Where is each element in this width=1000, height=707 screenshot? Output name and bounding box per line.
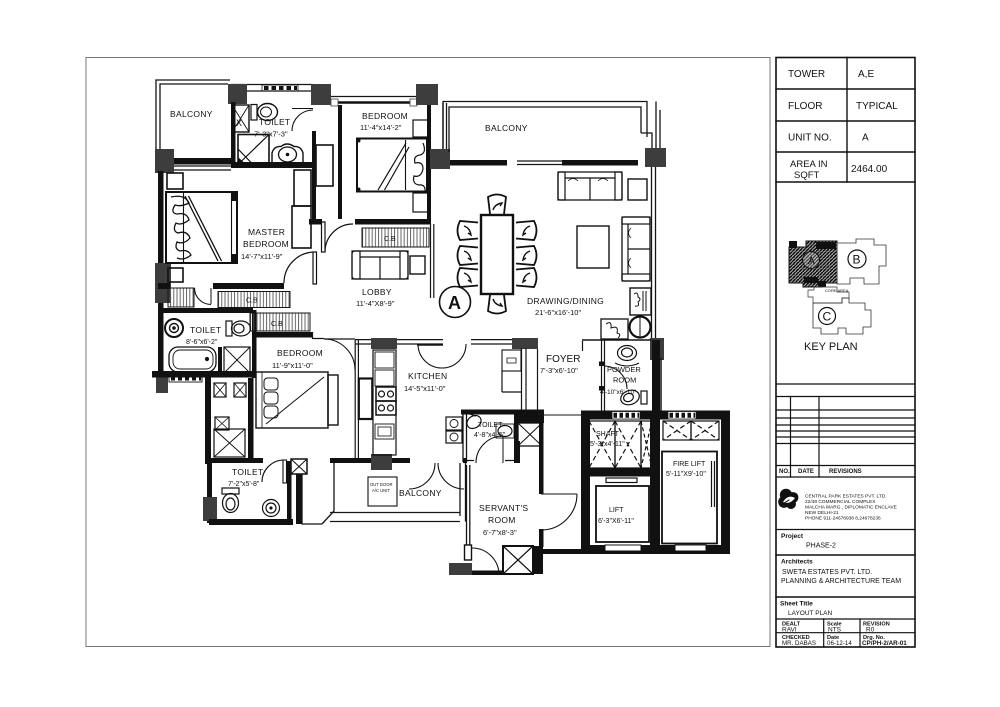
svg-text:PHONE 911-24678938 8,24678236: PHONE 911-24678938 8,24678236 <box>805 516 881 522</box>
svg-text:MALCHA MARG , DIPLOMATIC ENCLA: MALCHA MARG , DIPLOMATIC ENCLAVE <box>805 505 897 511</box>
svg-text:TOILET: TOILET <box>478 422 503 429</box>
svg-text:A,E: A,E <box>858 69 874 80</box>
svg-text:B: B <box>853 253 861 267</box>
svg-text:R0: R0 <box>866 627 875 634</box>
svg-text:BALCONY: BALCONY <box>170 109 213 119</box>
svg-text:LOBBY: LOBBY <box>362 287 392 297</box>
svg-text:MASTER: MASTER <box>248 227 285 237</box>
svg-text:DATE: DATE <box>798 469 814 475</box>
svg-text:KEY PLAN: KEY PLAN <box>804 341 858 353</box>
svg-text:BALCONY: BALCONY <box>485 123 528 133</box>
svg-text:POWDER: POWDER <box>607 365 641 374</box>
svg-text:7'-2"x5'-8": 7'-2"x5'-8" <box>228 481 260 488</box>
svg-text:22/48 COMMERCIAL COMPLEX: 22/48 COMMERCIAL COMPLEX <box>805 499 876 505</box>
svg-text:11'-9"x11'-0": 11'-9"x11'-0" <box>272 361 313 370</box>
svg-text:11'-4"X8'-9": 11'-4"X8'-9" <box>356 299 395 308</box>
svg-text:11'-4"x14'-2": 11'-4"x14'-2" <box>360 123 402 132</box>
svg-text:4'-10"x6'-10": 4'-10"x6'-10" <box>600 389 637 396</box>
svg-text:FLOOR: FLOOR <box>788 101 822 112</box>
svg-text:8'-6"x6'-2": 8'-6"x6'-2" <box>186 339 218 346</box>
svg-text:7'-3"x6'-10": 7'-3"x6'-10" <box>540 366 578 375</box>
svg-text:PHASE-2: PHASE-2 <box>806 543 836 550</box>
svg-text:Project: Project <box>781 533 804 540</box>
svg-text:ROOM: ROOM <box>488 515 516 525</box>
svg-text:CP/PH-2/AR-01: CP/PH-2/AR-01 <box>862 640 907 647</box>
svg-text:TOILET: TOILET <box>232 467 263 477</box>
svg-text:5'-3"x4'-11": 5'-3"x4'-11" <box>590 441 625 448</box>
svg-text:Sheet Title: Sheet Title <box>780 601 813 608</box>
svg-text:C.B: C.B <box>246 298 258 305</box>
svg-text:NEW DELHI-21: NEW DELHI-21 <box>805 510 839 516</box>
svg-text:X: X <box>236 118 242 128</box>
svg-text:FOYER: FOYER <box>546 354 580 365</box>
svg-text:C: C <box>823 310 832 324</box>
svg-text:BEDROOM: BEDROOM <box>243 239 289 249</box>
svg-text:06-12-14: 06-12-14 <box>827 640 852 647</box>
svg-text:BALCONY: BALCONY <box>399 488 442 498</box>
svg-text:ROOM: ROOM <box>613 376 636 385</box>
svg-text:A: A <box>448 293 461 313</box>
svg-text:SERVANT'S: SERVANT'S <box>479 503 528 513</box>
svg-text:RAVI: RAVI <box>782 627 797 634</box>
svg-text:BEDROOM: BEDROOM <box>362 111 408 121</box>
svg-text:UNIT NO.: UNIT NO. <box>788 133 832 144</box>
svg-text:A: A <box>808 256 815 267</box>
svg-text:TOILET: TOILET <box>190 325 221 335</box>
svg-text:TOILET: TOILET <box>259 117 290 127</box>
svg-text:14'-5"x11'-0": 14'-5"x11'-0" <box>404 384 446 393</box>
svg-text:A: A <box>862 133 869 144</box>
svg-text:CENTRAL PARK ESTATES PVT. LTD.: CENTRAL PARK ESTATES PVT. LTD. <box>805 494 887 500</box>
svg-text:4'-8"x4'-5": 4'-8"x4'-5" <box>474 432 506 439</box>
svg-text:BEDROOM: BEDROOM <box>277 348 323 358</box>
svg-text:LAYOUT PLAN: LAYOUT PLAN <box>788 610 832 617</box>
svg-text:6'-7"x8'-3": 6'-7"x8'-3" <box>483 528 517 537</box>
svg-text:KITCHEN: KITCHEN <box>408 371 447 381</box>
svg-text:5'-11"X9'-10": 5'-11"X9'-10" <box>666 471 706 478</box>
svg-text:LIFT: LIFT <box>609 507 624 514</box>
svg-text:7'-3"x7'-3": 7'-3"x7'-3" <box>254 130 288 139</box>
svg-text:NO.: NO. <box>779 469 790 475</box>
svg-text:2464.00: 2464.00 <box>851 164 888 175</box>
svg-text:REVISIONS: REVISIONS <box>829 469 862 475</box>
svg-text:C.B: C.B <box>271 321 283 328</box>
svg-text:14'-7"x11'-9": 14'-7"x11'-9" <box>241 252 283 261</box>
svg-text:SHAFT: SHAFT <box>596 431 620 438</box>
svg-text:TYPICAL: TYPICAL <box>856 101 898 112</box>
svg-text:AREA IN: AREA IN <box>790 159 828 170</box>
svg-text:MR. DABAS: MR. DABAS <box>782 640 816 647</box>
svg-text:PLANNING & ARCHITECTURE TEAM: PLANNING & ARCHITECTURE TEAM <box>781 578 901 585</box>
svg-text:OUT DOOR: OUT DOOR <box>370 482 393 487</box>
svg-text:DRAWING/DINING: DRAWING/DINING <box>527 296 604 306</box>
svg-text:Architects: Architects <box>781 559 813 566</box>
svg-text:21'-6"x16'-10": 21'-6"x16'-10" <box>535 308 581 317</box>
svg-text:SWETA ESTATES PVT. LTD.: SWETA ESTATES PVT. LTD. <box>782 569 872 576</box>
svg-text:6'-3"X6'-11": 6'-3"X6'-11" <box>598 518 634 525</box>
svg-text:TOWER: TOWER <box>788 69 825 80</box>
svg-text:C.B: C.B <box>384 236 396 243</box>
svg-text:A/C UNIT: A/C UNIT <box>372 488 390 493</box>
svg-text:SQFT: SQFT <box>794 170 820 181</box>
svg-text:FIRE LIFT: FIRE LIFT <box>673 461 706 468</box>
svg-text:NTS: NTS <box>828 627 842 634</box>
